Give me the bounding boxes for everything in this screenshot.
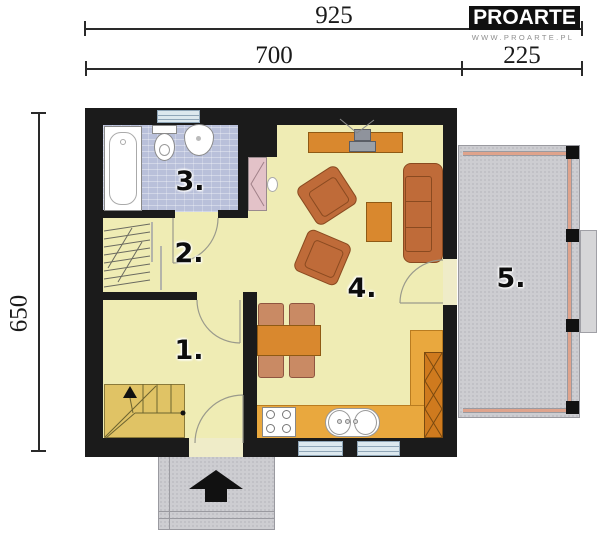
- stair-newel-dot: [181, 411, 186, 416]
- room-label-1: 1.: [168, 337, 210, 364]
- tv-antenna-icon: [340, 119, 374, 133]
- room-label-2: 2.: [168, 240, 210, 267]
- fireplace-chevron-icon: [251, 162, 264, 206]
- terrace-door: [400, 260, 443, 303]
- stair-up-arrow-icon: [123, 386, 137, 398]
- stair-treads: [105, 384, 185, 438]
- front-door: [195, 395, 243, 443]
- floor-plan: 925 700 225 650 PROARTE WWW.PROARTE.PL: [0, 0, 600, 537]
- room-label-3: 3.: [169, 168, 211, 195]
- wardrobe-hatch-icon: [104, 224, 150, 287]
- room-label-4: 4.: [341, 275, 383, 302]
- cabinet-lattice: [425, 353, 442, 437]
- room-label-5: 5.: [490, 265, 532, 292]
